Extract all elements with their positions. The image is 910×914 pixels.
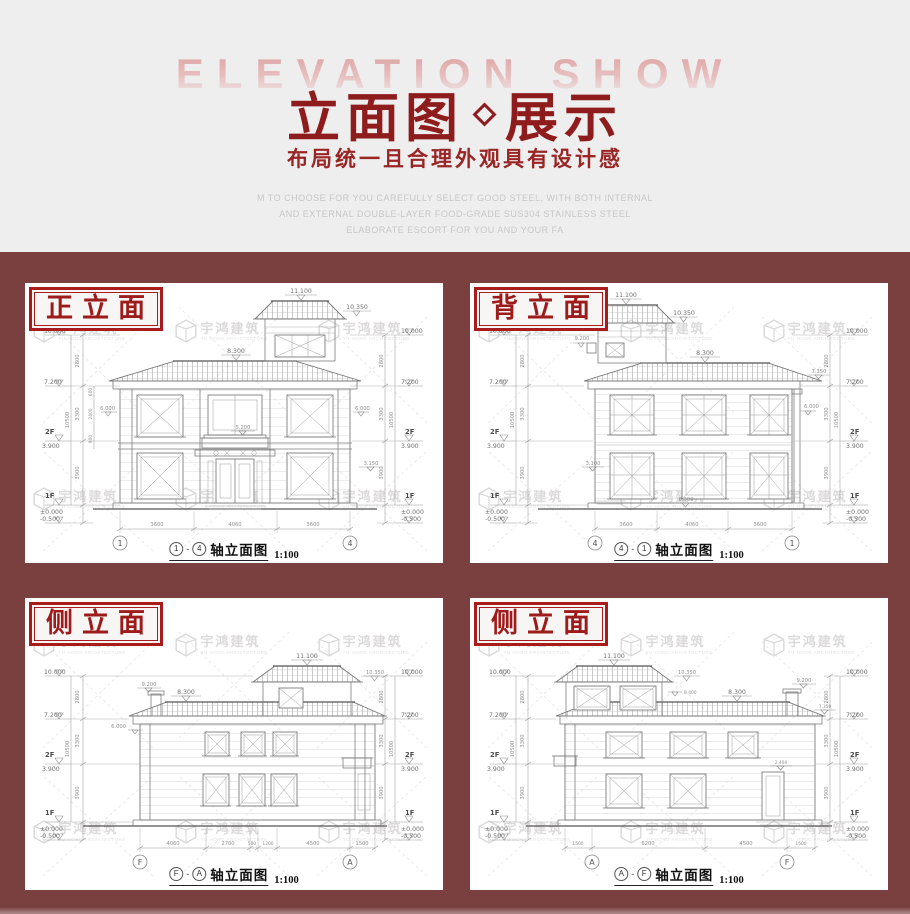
drawing-caption: A-F轴立面图 1:100 <box>614 864 744 886</box>
svg-text:8.300: 8.300 <box>728 689 746 696</box>
svg-text:-0.500: -0.500 <box>846 516 866 523</box>
page: ELEVATION SHOW 立面图 展示 布局统一且合理外观具有设计感 M T… <box>0 0 910 914</box>
svg-text:2F: 2F <box>490 751 500 759</box>
svg-text:10.000: 10.000 <box>846 669 868 676</box>
svg-text:3.900: 3.900 <box>401 443 419 450</box>
svg-text:1200: 1200 <box>262 841 273 847</box>
svg-text:3300: 3300 <box>75 734 81 747</box>
svg-text:±0.000: ±0.000 <box>40 826 63 833</box>
svg-text:1F: 1F <box>490 809 500 817</box>
svg-text:10500: 10500 <box>65 741 71 758</box>
panel-label: 侧立面 <box>29 602 163 646</box>
svg-text:7.200: 7.200 <box>401 379 419 386</box>
description-line: AND EXTERNAL DOUBLE-LAYER FOOD-GRADE SUS… <box>279 209 630 219</box>
svg-text:3.150: 3.150 <box>364 461 379 467</box>
svg-text:2800: 2800 <box>824 354 830 367</box>
svg-text:10500: 10500 <box>510 412 516 429</box>
svg-text:9.200: 9.200 <box>575 336 590 342</box>
svg-text:10.350: 10.350 <box>366 670 384 676</box>
svg-text:7.200: 7.200 <box>44 379 62 386</box>
svg-text:500: 500 <box>248 841 257 847</box>
svg-text:1F: 1F <box>405 809 415 817</box>
svg-text:-0.500: -0.500 <box>846 833 866 840</box>
svg-text:9.200: 9.200 <box>797 678 812 684</box>
svg-text:2F: 2F <box>405 428 415 436</box>
subtitle: 布局统一且合理外观具有设计感 <box>0 143 910 173</box>
svg-text:3.900: 3.900 <box>401 766 419 773</box>
svg-text:10.000: 10.000 <box>489 669 511 676</box>
svg-text:2800: 2800 <box>520 690 526 703</box>
svg-text:2800: 2800 <box>379 354 385 367</box>
svg-text:7.200: 7.200 <box>44 712 62 719</box>
svg-text:3300: 3300 <box>520 407 526 420</box>
svg-text:2800: 2800 <box>75 354 81 367</box>
svg-text:2800: 2800 <box>75 690 81 703</box>
axis-bubble: 1 <box>169 542 183 556</box>
diamond-separator-icon <box>472 102 496 126</box>
svg-text:2400: 2400 <box>88 408 94 419</box>
svg-text:±0.000: ±0.000 <box>401 509 424 516</box>
elevation-grid: 宇鸿建筑YU HONG ARCHITECTURE 宇鸿建筑YU HONG ARC… <box>0 252 910 914</box>
svg-text:6.000: 6.000 <box>100 406 115 412</box>
svg-text:3600: 3600 <box>619 522 632 528</box>
drawing-caption: 4-1轴立面图 1:100 <box>614 539 744 561</box>
svg-text:3300: 3300 <box>75 407 81 420</box>
svg-text:3900: 3900 <box>75 466 81 479</box>
svg-text:10500: 10500 <box>834 412 840 429</box>
svg-text:3900: 3900 <box>520 466 526 479</box>
svg-text:-0.500: -0.500 <box>40 516 60 523</box>
svg-text:1500: 1500 <box>795 841 806 847</box>
svg-text:11.100: 11.100 <box>603 653 625 660</box>
svg-text:3600: 3600 <box>306 522 319 528</box>
header: ELEVATION SHOW 立面图 展示 布局统一且合理外观具有设计感 M T… <box>0 0 910 252</box>
svg-text:3300: 3300 <box>824 407 830 420</box>
svg-text:3.900: 3.900 <box>487 766 505 773</box>
svg-text:3.900: 3.900 <box>487 443 505 450</box>
svg-text:F: F <box>138 858 143 867</box>
svg-text:1500: 1500 <box>355 841 368 847</box>
svg-text:±0.000: ±0.000 <box>485 826 508 833</box>
svg-text:3.900: 3.900 <box>846 443 864 450</box>
svg-text:4060: 4060 <box>228 522 241 528</box>
svg-text:2F: 2F <box>850 428 860 436</box>
svg-text:10.000: 10.000 <box>44 669 66 676</box>
svg-text:0.300: 0.300 <box>679 497 694 503</box>
panel-side-elevation-right: 宇鸿建筑YU HONG ARCHITECTURE 宇鸿建筑YU HONG ARC… <box>470 598 888 890</box>
svg-text:-0.500: -0.500 <box>485 833 505 840</box>
description-line: ELABORATE ESCORT FOR YOU AND YOUR FA <box>346 225 563 235</box>
svg-text:10500: 10500 <box>389 741 395 758</box>
svg-text:8.300: 8.300 <box>177 689 195 696</box>
drawing-caption: 1-4轴立面图 1:100 <box>169 539 299 561</box>
svg-text:10.350: 10.350 <box>346 304 368 311</box>
svg-text:2F: 2F <box>850 751 860 759</box>
svg-text:4: 4 <box>592 539 597 548</box>
panel-label: 正立面 <box>29 287 163 331</box>
axis-bubble: A <box>192 867 206 881</box>
title-main: 立面图 <box>287 76 464 152</box>
page-title: 立面图 展示 <box>0 76 910 152</box>
svg-text:4500: 4500 <box>739 841 752 847</box>
house-side-af <box>526 666 832 826</box>
svg-text:7.200: 7.200 <box>489 379 507 386</box>
svg-text:3600: 3600 <box>753 522 766 528</box>
svg-text:900: 900 <box>88 435 94 444</box>
svg-text:10500: 10500 <box>510 741 516 758</box>
svg-text:2.400: 2.400 <box>775 760 788 766</box>
svg-text:1500: 1500 <box>572 841 583 847</box>
svg-text:2F: 2F <box>490 428 500 436</box>
svg-text:2800: 2800 <box>520 354 526 367</box>
svg-text:600: 600 <box>88 388 94 397</box>
svg-text:10.350: 10.350 <box>678 670 696 676</box>
svg-text:1: 1 <box>117 539 122 548</box>
title-tail: 展示 <box>505 76 623 152</box>
svg-text:10.350: 10.350 <box>673 310 695 317</box>
svg-text:3900: 3900 <box>520 786 526 799</box>
svg-text:4060: 4060 <box>166 841 179 847</box>
panel-back-elevation: 宇鸿建筑YU HONG ARCHITECTURE 宇鸿建筑YU HONG ARC… <box>470 283 888 563</box>
svg-text:1F: 1F <box>405 492 415 500</box>
svg-text:2800: 2800 <box>824 690 830 703</box>
svg-text:10.000: 10.000 <box>846 328 868 335</box>
panel-front-elevation: 宇鸿建筑YU HONG ARCHITECTURE 宇鸿建筑YU HONG ARC… <box>25 283 443 563</box>
svg-text:2F: 2F <box>45 751 55 759</box>
axis-bubble: A <box>614 867 628 881</box>
svg-text:3300: 3300 <box>379 407 385 420</box>
house-side-fa <box>83 666 387 826</box>
svg-text:1F: 1F <box>850 492 860 500</box>
svg-text:-0.500: -0.500 <box>40 833 60 840</box>
panel-label: 背立面 <box>474 287 608 331</box>
svg-text:8.300: 8.300 <box>696 350 714 357</box>
svg-text:±0.000: ±0.000 <box>846 509 869 516</box>
axis-bubble: 4 <box>192 542 206 556</box>
svg-text:2F: 2F <box>405 751 415 759</box>
svg-text:2800: 2800 <box>379 690 385 703</box>
svg-text:8.400: 8.400 <box>684 690 697 696</box>
svg-text:A: A <box>589 858 595 867</box>
svg-text:±0.000: ±0.000 <box>401 826 424 833</box>
svg-text:9.200: 9.200 <box>142 682 157 688</box>
svg-text:11.100: 11.100 <box>615 292 637 299</box>
svg-text:-0.500: -0.500 <box>401 516 421 523</box>
svg-text:1F: 1F <box>45 809 55 817</box>
svg-text:3300: 3300 <box>520 734 526 747</box>
drawing-caption: F-A轴立面图 1:100 <box>169 864 299 886</box>
svg-text:4500: 4500 <box>306 841 319 847</box>
svg-text:3.900: 3.900 <box>42 766 60 773</box>
svg-text:3900: 3900 <box>379 466 385 479</box>
svg-text:6.000: 6.000 <box>355 406 370 412</box>
svg-text:6200: 6200 <box>641 841 654 847</box>
description: M TO CHOOSE FOR YOU CAREFULLY SELECT GOO… <box>0 190 910 238</box>
svg-text:10500: 10500 <box>65 412 71 429</box>
svg-text:7.200: 7.200 <box>846 379 864 386</box>
svg-text:11.100: 11.100 <box>296 653 318 660</box>
svg-text:10.000: 10.000 <box>401 328 423 335</box>
svg-text:3.900: 3.900 <box>846 766 864 773</box>
svg-text:6.000: 6.000 <box>804 404 819 410</box>
svg-text:±0.000: ±0.000 <box>485 509 508 516</box>
svg-text:3.900: 3.900 <box>42 443 60 450</box>
axis-bubble: 4 <box>614 542 628 556</box>
svg-text:2F: 2F <box>45 428 55 436</box>
svg-text:11.100: 11.100 <box>290 288 312 295</box>
svg-text:7.350: 7.350 <box>812 369 827 375</box>
svg-text:A: A <box>347 858 353 867</box>
svg-text:7.200: 7.200 <box>846 712 864 719</box>
house-front <box>93 301 377 509</box>
svg-text:10500: 10500 <box>389 412 395 429</box>
svg-text:3300: 3300 <box>379 734 385 747</box>
description-line: M TO CHOOSE FOR YOU CAREFULLY SELECT GOO… <box>257 193 653 203</box>
svg-text:4060: 4060 <box>685 522 698 528</box>
svg-text:4: 4 <box>347 539 352 548</box>
svg-text:3900: 3900 <box>824 786 830 799</box>
axis-bubble: F <box>169 867 183 881</box>
axis-bubble: F <box>637 867 651 881</box>
svg-text:±0.000: ±0.000 <box>40 509 63 516</box>
svg-text:10500: 10500 <box>834 741 840 758</box>
svg-text:10.000: 10.000 <box>401 669 423 676</box>
svg-text:5.200: 5.200 <box>236 425 251 431</box>
svg-text:6.000: 6.000 <box>111 724 126 730</box>
svg-text:3300: 3300 <box>824 734 830 747</box>
svg-text:1F: 1F <box>850 809 860 817</box>
svg-text:-0.500: -0.500 <box>401 833 421 840</box>
svg-text:2700: 2700 <box>221 841 234 847</box>
svg-text:3900: 3900 <box>824 466 830 479</box>
svg-text:7.200: 7.200 <box>489 712 507 719</box>
svg-text:3600: 3600 <box>150 522 163 528</box>
panel-label: 侧立面 <box>474 602 608 646</box>
svg-text:3900: 3900 <box>379 786 385 799</box>
svg-text:1F: 1F <box>490 492 500 500</box>
svg-text:-0.500: -0.500 <box>485 516 505 523</box>
svg-text:F: F <box>785 858 790 867</box>
svg-text:8.300: 8.300 <box>227 348 245 355</box>
svg-text:±0.000: ±0.000 <box>846 826 869 833</box>
svg-text:7.350: 7.350 <box>819 704 832 710</box>
panel-side-elevation-left: 宇鸿建筑YU HONG ARCHITECTURE 宇鸿建筑YU HONG ARC… <box>25 598 443 890</box>
svg-text:3.100: 3.100 <box>586 461 601 467</box>
axis-bubble: 1 <box>637 542 651 556</box>
svg-text:1F: 1F <box>45 492 55 500</box>
svg-text:3900: 3900 <box>75 786 81 799</box>
svg-text:1: 1 <box>789 539 794 548</box>
svg-text:7.200: 7.200 <box>401 712 419 719</box>
